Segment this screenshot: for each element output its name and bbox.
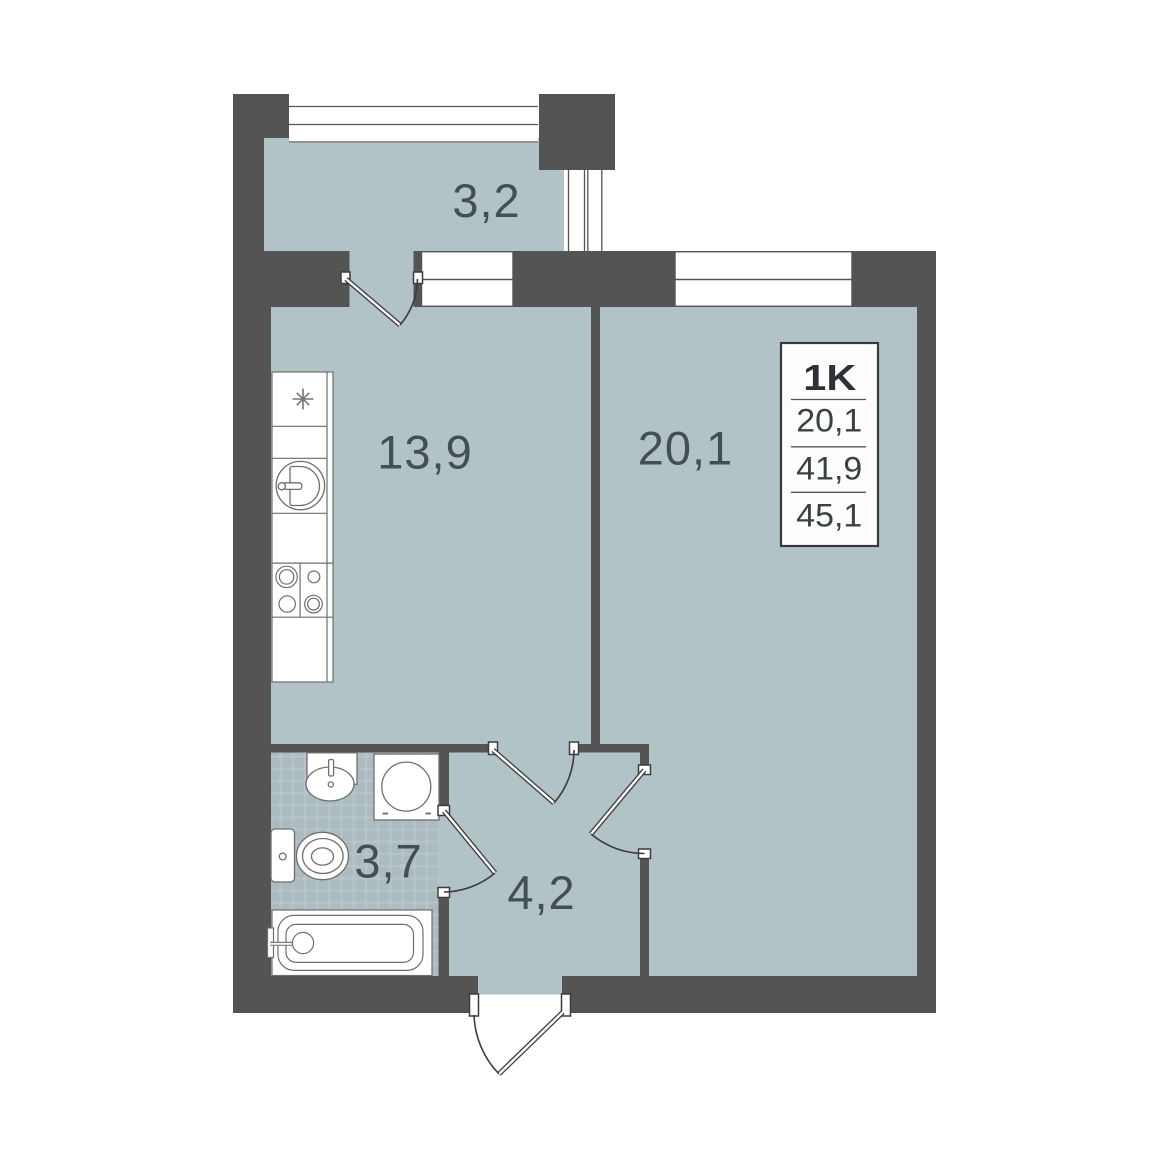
svg-text:1K: 1K	[803, 357, 857, 398]
svg-text:3,7: 3,7	[354, 834, 422, 887]
svg-text:20,1: 20,1	[796, 402, 862, 438]
svg-text:13,9: 13,9	[377, 425, 472, 478]
svg-text:4,2: 4,2	[507, 866, 575, 919]
svg-text:20,1: 20,1	[638, 422, 733, 475]
svg-text:3,2: 3,2	[452, 174, 520, 227]
svg-text:45,1: 45,1	[796, 498, 862, 534]
svg-text:41,9: 41,9	[796, 451, 862, 487]
